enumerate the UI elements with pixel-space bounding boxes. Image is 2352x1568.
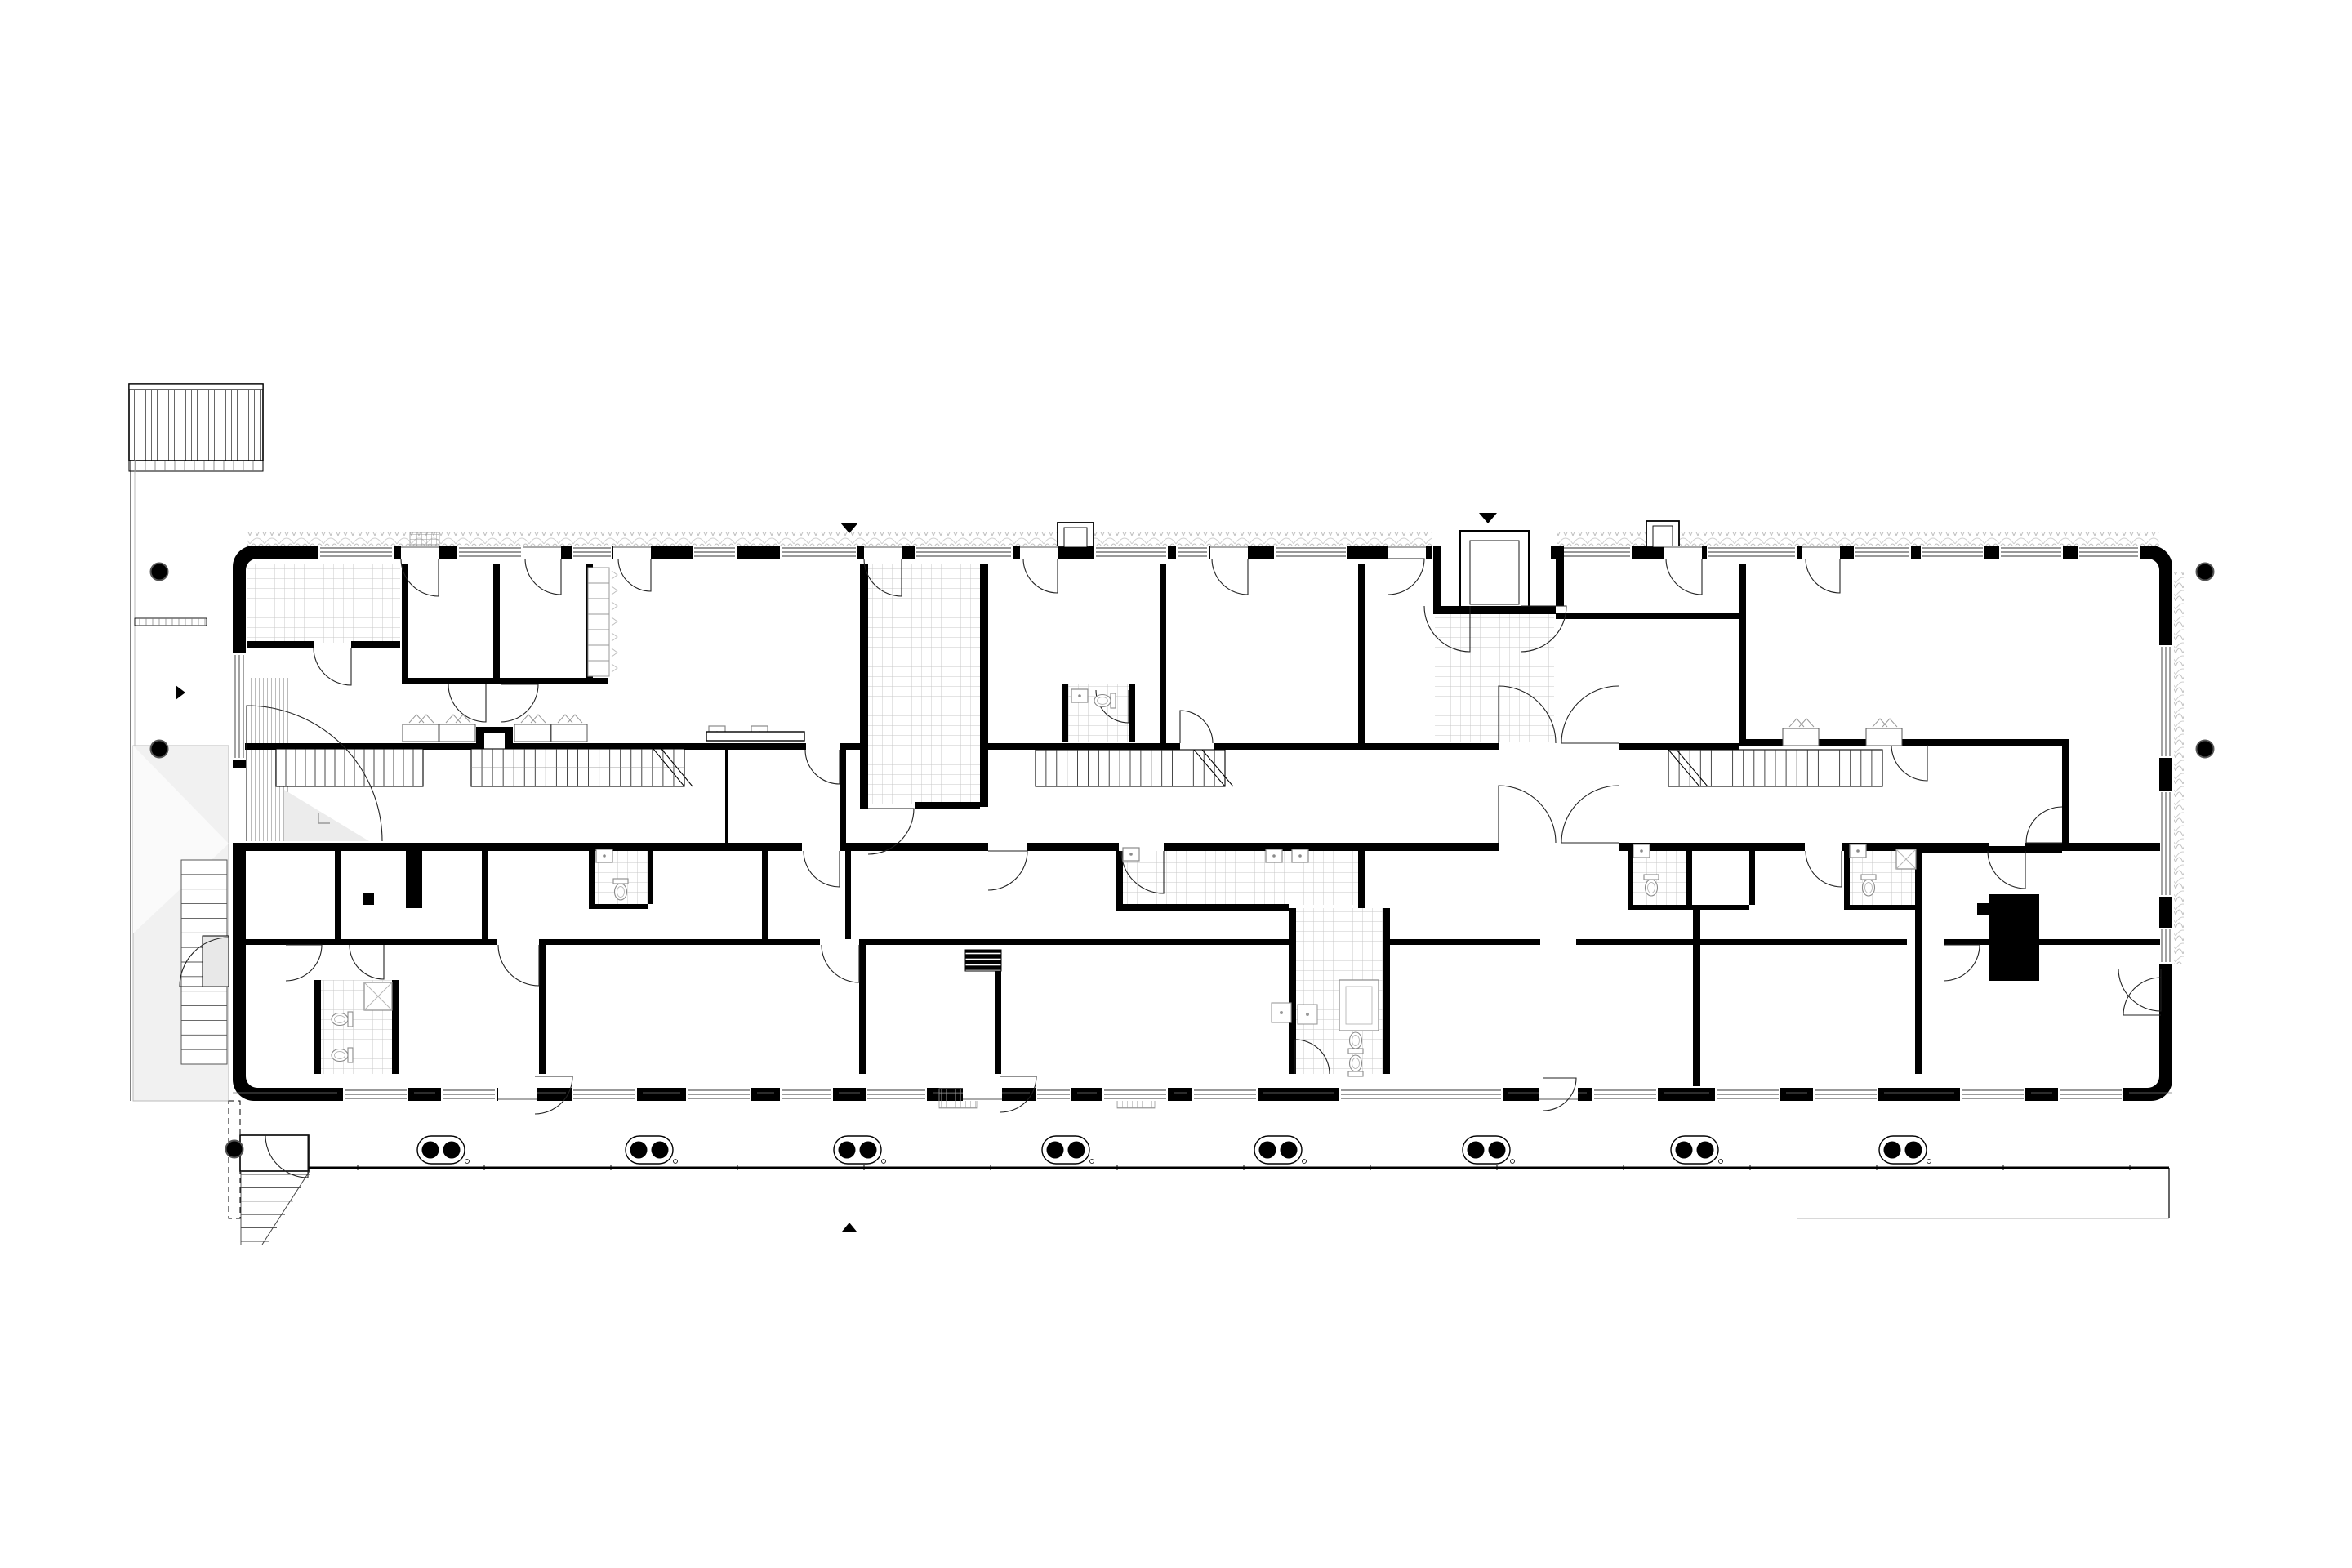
window-jamb xyxy=(2159,785,2172,791)
interior-wall xyxy=(860,563,868,807)
interior-wall xyxy=(725,749,728,843)
interior-wall xyxy=(1160,563,1166,743)
window-jamb xyxy=(1709,1088,1715,1101)
toilet-bowl xyxy=(1350,1055,1362,1071)
toilet-tank xyxy=(1644,875,1659,880)
sink-drain xyxy=(1640,849,1643,853)
building-envelope-layer xyxy=(233,521,2184,1101)
wardrobe-unit xyxy=(588,645,609,661)
round-column xyxy=(1468,1142,1485,1159)
window-jamb xyxy=(1848,546,1854,559)
window-jamb xyxy=(751,1088,757,1101)
interior-wall xyxy=(589,904,648,909)
wardrobe-unit xyxy=(588,568,609,583)
round-column xyxy=(443,1142,461,1159)
washer-door xyxy=(1280,1011,1283,1014)
interior-wall xyxy=(539,939,820,945)
shaft-or-column xyxy=(476,732,484,750)
interior-wall xyxy=(1027,843,1119,851)
interior-wall xyxy=(1749,847,1755,905)
round-column xyxy=(1676,1142,1693,1159)
sink-drain xyxy=(603,854,606,857)
window-jamb xyxy=(774,1088,780,1101)
wardrobe-unit xyxy=(588,583,609,599)
sink-drain xyxy=(1298,854,1302,857)
entrance-arrow-marker xyxy=(176,685,185,700)
round-column xyxy=(1884,1142,1901,1159)
window-jamb xyxy=(2063,546,2069,559)
round-column xyxy=(422,1142,439,1159)
interior-wall xyxy=(1915,846,2062,853)
window-jamb xyxy=(2072,546,2078,559)
sink-drain xyxy=(1856,849,1860,853)
round-column xyxy=(1047,1142,1064,1159)
window-jamb xyxy=(1587,1088,1592,1101)
interior-wall xyxy=(351,641,400,648)
toilet xyxy=(1861,875,1876,896)
interior-wall xyxy=(1129,684,1135,742)
site-column-dot xyxy=(2197,741,2214,758)
round-column xyxy=(1281,1142,1298,1159)
anchor-dot xyxy=(1511,1160,1515,1164)
interior-wall xyxy=(1944,939,2160,945)
shaft-or-column xyxy=(406,851,422,908)
toilet xyxy=(332,1012,353,1027)
interior-wall xyxy=(1693,908,1700,1086)
window-jamb xyxy=(2159,922,2172,928)
interior-wall xyxy=(392,980,399,1074)
toilet-tank xyxy=(1348,1071,1363,1076)
window-jamb xyxy=(1071,1088,1077,1101)
window-jamb xyxy=(637,1088,643,1101)
floor-plan-page xyxy=(0,0,2352,1568)
interior-wall xyxy=(1915,847,1922,1074)
round-column xyxy=(1068,1142,1085,1159)
interior-wall xyxy=(648,848,653,904)
window-jamb xyxy=(1170,546,1176,559)
sink-drain xyxy=(1272,854,1276,857)
toilet xyxy=(332,1048,353,1062)
interior-wall xyxy=(314,980,321,1074)
toilet-tank xyxy=(1348,1049,1363,1053)
round-column xyxy=(1489,1142,1506,1159)
anchor-dot xyxy=(1719,1160,1723,1164)
kitchen-bench xyxy=(965,950,1001,971)
porch-column-pair xyxy=(1042,1136,1094,1164)
interior-wall xyxy=(2062,739,2069,846)
round-column xyxy=(1259,1142,1276,1159)
anchor-dot xyxy=(882,1160,886,1164)
window-jamb xyxy=(1878,1088,1884,1101)
window-jamb xyxy=(1503,1088,1508,1101)
wardrobe-unit xyxy=(588,661,609,676)
interior-wall xyxy=(1433,606,1556,614)
interior-wall xyxy=(589,848,595,904)
toilet-bowl xyxy=(1863,880,1875,896)
interior-wall xyxy=(840,843,988,851)
porch-column-pair xyxy=(417,1136,470,1164)
anchor-dot xyxy=(465,1160,470,1164)
window-jamb xyxy=(408,1088,414,1101)
window-jamb xyxy=(2159,639,2172,645)
sink-drain xyxy=(1129,853,1133,856)
toilet-bowl xyxy=(332,1013,348,1026)
toilet-bowl xyxy=(332,1049,348,1062)
main-entrance-opening xyxy=(233,768,246,843)
toilet xyxy=(1644,875,1659,896)
window-jamb xyxy=(2140,546,2145,559)
window-jamb xyxy=(394,546,399,559)
interior-wall xyxy=(335,851,341,939)
toilet xyxy=(1348,1032,1363,1053)
window-jamb xyxy=(687,546,693,559)
toilet xyxy=(1348,1055,1363,1076)
anchor-dot xyxy=(674,1160,678,1164)
porch-column-pair xyxy=(1463,1136,1515,1164)
terrace-railing xyxy=(135,618,207,626)
interior-wall xyxy=(840,743,860,750)
tiled-floor xyxy=(860,563,980,804)
window-jamb xyxy=(337,1088,343,1101)
window-jamb xyxy=(1632,546,1637,559)
toilet-bowl xyxy=(1350,1032,1362,1049)
floor-plan-drawing xyxy=(0,0,2352,1568)
interior-wall xyxy=(859,945,866,1074)
washer-door xyxy=(1306,1013,1309,1016)
desk xyxy=(403,724,439,742)
interior-wall xyxy=(980,743,1180,750)
shaft-or-column xyxy=(1977,903,1989,915)
window-jamb xyxy=(1701,546,1707,559)
shaft-or-column xyxy=(1989,894,2039,981)
window-jamb xyxy=(1347,546,1353,559)
toilet-tank xyxy=(613,879,628,884)
window-jamb xyxy=(737,546,742,559)
balcony-edge xyxy=(129,384,263,390)
toilet-bowl xyxy=(615,884,627,900)
interior-wall xyxy=(1844,905,1915,910)
desk xyxy=(551,724,587,742)
interior-wall xyxy=(247,641,314,648)
window-jamb xyxy=(566,1088,572,1101)
interior-wall xyxy=(245,939,497,945)
toilet-tank xyxy=(348,1048,353,1062)
interior-floor-field xyxy=(246,559,2159,1088)
window-jamb xyxy=(2123,1088,2129,1101)
tiled-floor xyxy=(1116,851,1358,905)
entrance-arrow-marker xyxy=(842,1223,857,1232)
interior-wall xyxy=(1383,908,1390,1074)
window-jamb xyxy=(833,1088,839,1101)
interior-wall xyxy=(1628,847,1633,905)
window-jamb xyxy=(1797,546,1802,559)
window-jamb xyxy=(1551,546,1557,559)
insulation-band-right xyxy=(2174,572,2184,964)
anchor-dot xyxy=(1303,1160,1307,1164)
desk xyxy=(1866,728,1902,746)
interior-wall xyxy=(493,563,500,684)
window-jamb xyxy=(435,1088,441,1101)
interior-wall xyxy=(762,851,768,939)
toilet-bowl xyxy=(1646,880,1658,896)
interior-wall xyxy=(1358,851,1365,908)
chimney-flue xyxy=(1653,526,1673,547)
round-column xyxy=(839,1142,856,1159)
wardrobe-unit xyxy=(588,630,609,645)
window-jamb xyxy=(1187,1088,1192,1101)
interior-wall xyxy=(1116,904,1289,911)
site-column-dot xyxy=(2197,563,2214,581)
window-jamb xyxy=(2159,758,2172,764)
stair-cut-line xyxy=(262,1171,310,1245)
interior-wall xyxy=(1628,905,1749,910)
wardrobe-unit xyxy=(588,614,609,630)
interior-wall xyxy=(1383,939,1540,945)
window-jamb xyxy=(1030,1088,1036,1101)
kitchenette-counter xyxy=(706,732,804,741)
round-column xyxy=(630,1142,648,1159)
interior-wall xyxy=(859,939,1289,945)
vestibule-inner-line xyxy=(1470,541,1519,604)
porch-column-pair xyxy=(626,1136,678,1164)
window-jamb xyxy=(860,1088,866,1101)
interior-wall xyxy=(245,843,802,851)
interior-wall xyxy=(1556,546,1564,606)
vanity-counter xyxy=(1339,980,1379,1031)
toilet xyxy=(1094,693,1116,708)
interior-wall xyxy=(1619,743,1739,750)
interior-wall xyxy=(1576,939,1907,945)
shaft-or-column xyxy=(363,893,374,905)
toilet xyxy=(613,879,628,900)
interior-wall xyxy=(402,563,408,684)
porch-column-pair xyxy=(1254,1136,1307,1164)
interior-wall xyxy=(1433,546,1441,606)
desk xyxy=(439,724,475,742)
window-jamb xyxy=(1658,1088,1664,1101)
anchor-dot xyxy=(1927,1160,1931,1164)
window-jamb xyxy=(1089,546,1094,559)
entrance-mat xyxy=(410,532,439,546)
balcony-top-left xyxy=(129,384,263,461)
toilet-bowl xyxy=(1094,695,1111,707)
desk xyxy=(514,724,550,742)
interior-wall xyxy=(1214,743,1499,750)
desk xyxy=(1783,728,1819,746)
interior-wall xyxy=(402,678,608,684)
interior-wall xyxy=(1358,563,1365,743)
window-jamb xyxy=(1780,1088,1786,1101)
window-jamb xyxy=(1915,546,1921,559)
entrance-arrow-marker xyxy=(840,523,858,533)
window-jamb xyxy=(909,546,915,559)
window-jamb xyxy=(2159,964,2172,969)
porch-enclosure xyxy=(240,1135,309,1171)
round-column xyxy=(1697,1142,1714,1159)
window-jamb xyxy=(1993,546,1999,559)
window-jamb xyxy=(1807,1088,1813,1101)
porch-left-strip xyxy=(229,1101,240,1218)
window-jamb xyxy=(2159,897,2172,902)
tiled-floor xyxy=(1435,606,1554,742)
window-jamb xyxy=(2025,1088,2031,1101)
toilet-tank xyxy=(1111,693,1116,708)
window-jamb xyxy=(1097,1088,1102,1101)
interior-wall xyxy=(1556,612,1739,619)
interior-wall xyxy=(840,749,846,851)
exterior-door-leaf xyxy=(203,936,229,987)
round-column xyxy=(1905,1142,1922,1159)
interior-wall xyxy=(1739,563,1746,739)
anchor-dot xyxy=(1090,1160,1094,1164)
window-jamb xyxy=(1984,546,1990,559)
window-jamb xyxy=(680,1088,686,1101)
window-jamb xyxy=(774,546,780,559)
porch-column-pair xyxy=(1879,1136,1931,1164)
interior-wall xyxy=(482,851,488,939)
window-jamb xyxy=(452,546,457,559)
window-jamb xyxy=(1268,546,1274,559)
toilet-tank xyxy=(1861,875,1876,880)
interior-wall xyxy=(915,802,980,808)
sink-drain xyxy=(1078,694,1081,697)
window-jamb xyxy=(1258,1088,1263,1101)
window-jamb xyxy=(2052,1088,2058,1101)
window-jamb xyxy=(927,1088,933,1101)
round-column xyxy=(860,1142,877,1159)
window-jamb xyxy=(1013,546,1018,559)
interior-wall xyxy=(1062,684,1068,742)
porch-column-pair xyxy=(834,1136,886,1164)
window-jamb xyxy=(1168,1088,1174,1101)
corridor-stair-run xyxy=(276,749,423,786)
site-column-dot xyxy=(151,741,168,758)
interior-wall xyxy=(539,945,546,1074)
window-jamb xyxy=(566,546,572,559)
window-jamb xyxy=(1954,1088,1960,1101)
shaft-or-column xyxy=(505,732,513,750)
round-column xyxy=(652,1142,669,1159)
wardrobe-unit xyxy=(588,599,609,614)
porch-column-pair xyxy=(1671,1136,1723,1164)
window-jamb xyxy=(857,546,863,559)
toilet-tank xyxy=(348,1012,353,1027)
interior-wall xyxy=(1686,847,1692,905)
interior-wall xyxy=(980,563,988,807)
window-jamb xyxy=(313,546,318,559)
balcony-railing xyxy=(129,461,263,471)
interior-wall xyxy=(1844,847,1850,905)
entrance-arrow-marker xyxy=(1479,513,1497,523)
site-column-dot xyxy=(151,563,168,581)
interior-wall xyxy=(1164,843,1499,851)
interior-wall xyxy=(845,851,851,939)
site-column-dot xyxy=(226,1141,243,1158)
tiled-floor xyxy=(247,563,400,643)
window-jamb xyxy=(1334,1088,1339,1101)
chimney-flue xyxy=(1064,528,1087,547)
